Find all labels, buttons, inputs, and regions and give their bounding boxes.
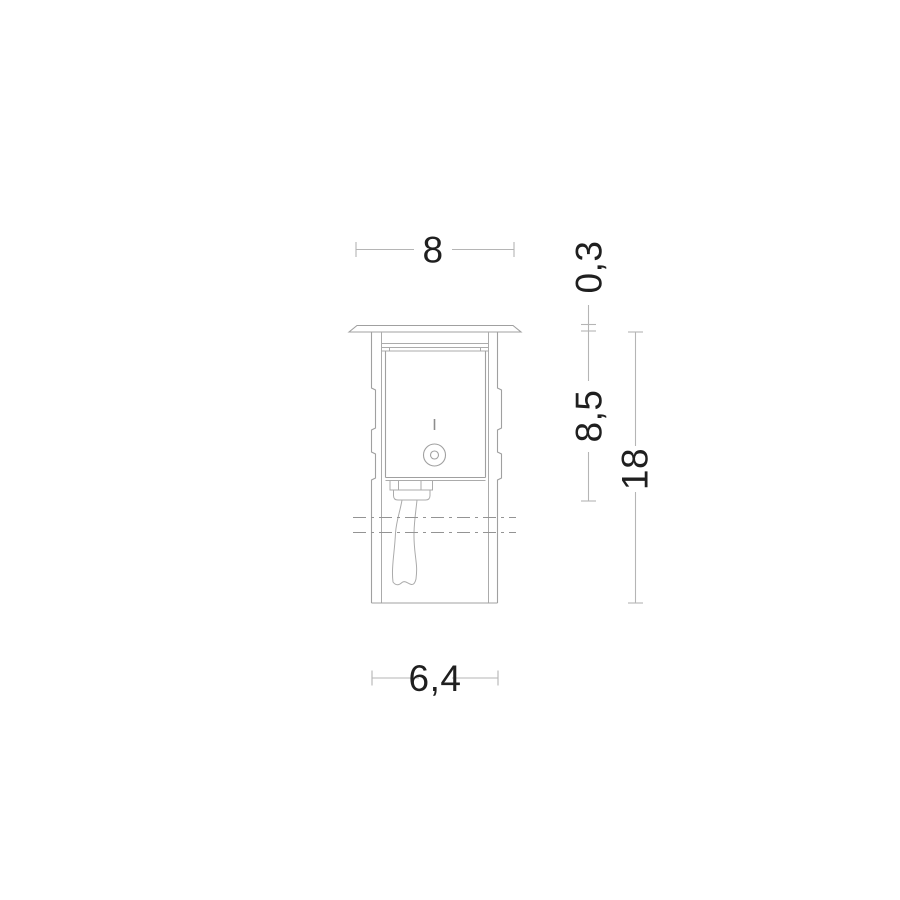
sleeve-left-wall [372,332,376,603]
bezel-band [382,344,489,352]
dim-label-total-depth: 18 [614,448,655,490]
body-outline [386,351,486,481]
flange-outline [349,326,521,333]
sleeve-right-wall [498,332,502,603]
dimension-drawing-canvas: 8 0,3 8,5 18 6,4 [0,0,900,900]
dim-recess-depth: 8,5 [568,390,609,501]
supply-cable [392,500,417,585]
dim-flange-thickness: 0,3 [568,241,609,381]
dim-total-depth: 18 [614,332,655,603]
luminaire-elevation [349,326,521,604]
dim-body-width: 6,4 [372,658,498,699]
dim-label-body-width: 6,4 [409,658,462,699]
gland-circle-inner [431,451,439,459]
gland-circle-outer [424,444,446,466]
dim-label-flange-thickness: 0,3 [568,241,609,294]
dim-top-width: 8 [356,229,514,270]
cable-gland [390,481,433,501]
dim-label-recess-depth: 8,5 [568,390,609,443]
dim-label-top-width: 8 [422,229,443,270]
drawing-page: 8 0,3 8,5 18 6,4 [0,0,900,900]
